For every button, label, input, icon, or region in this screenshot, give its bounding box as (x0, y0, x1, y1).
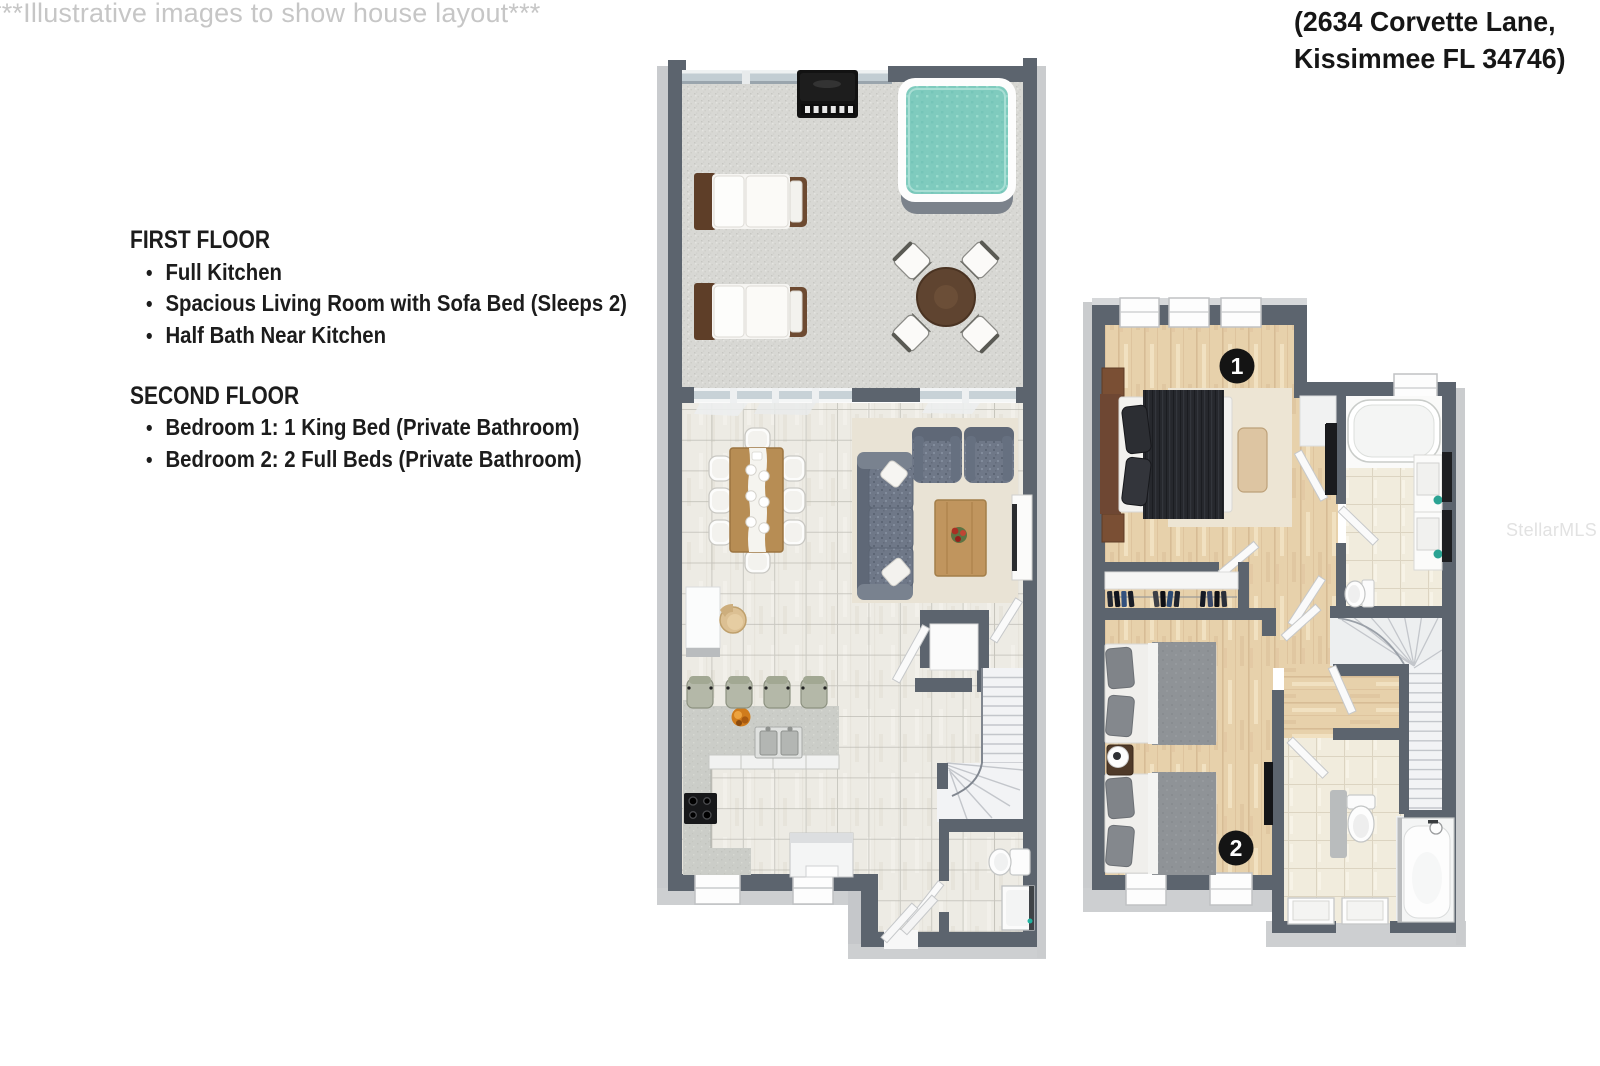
svg-text:1: 1 (1231, 353, 1244, 379)
svg-text:2: 2 (1230, 835, 1243, 861)
